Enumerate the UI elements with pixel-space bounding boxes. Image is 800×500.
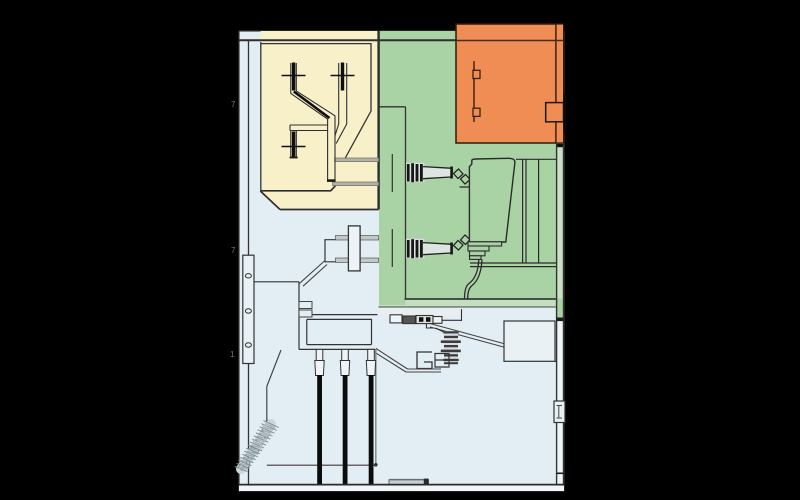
svg-text:1: 1 [230,350,235,359]
svg-text:7: 7 [231,246,236,255]
svg-text:7: 7 [231,100,236,109]
